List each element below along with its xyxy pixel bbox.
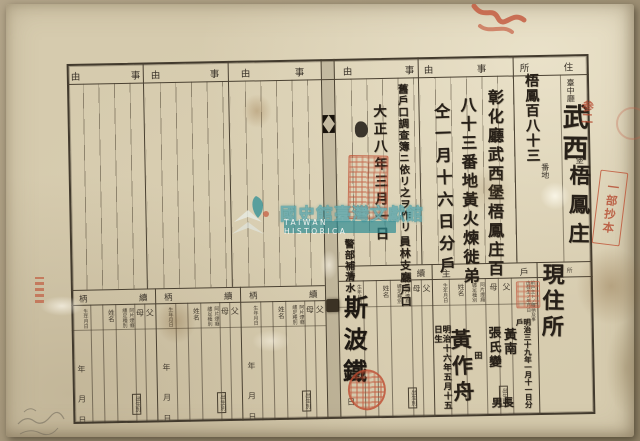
birth-order-box: 出生別 xyxy=(216,392,226,413)
day-mark: 日 xyxy=(163,413,171,424)
header-jusho-char: 住 xyxy=(564,59,574,73)
birth-date-label: 生年月日 xyxy=(252,305,257,325)
red-square-seal xyxy=(348,155,389,220)
header-jiyu-char: 事 xyxy=(210,66,220,80)
handwritten-birth-order: 長男 xyxy=(491,397,513,416)
father-label: 父 xyxy=(230,307,238,315)
year-mark: 年 xyxy=(77,364,85,375)
address-col-label: 所 xyxy=(567,265,573,274)
binding-tie-top xyxy=(329,115,335,133)
type-label: 纏足種別 xyxy=(121,308,126,328)
mother-label: 母 xyxy=(135,309,143,317)
year-mark: 年 xyxy=(162,362,170,373)
type-label: 阿片煙癮 xyxy=(128,308,133,328)
stain xyxy=(606,322,640,414)
birth-order-box: 出生別 xyxy=(407,387,417,408)
type-label: 阿片煙癮 xyxy=(298,305,303,325)
handwritten-mother-name: 張氏變 xyxy=(487,326,500,370)
month-mark: 月 xyxy=(163,392,171,403)
header-jiyu-char: 由 xyxy=(424,62,434,76)
lot-unit-printed: 番地 xyxy=(541,163,549,179)
father-label: 父 xyxy=(315,305,323,313)
birth-order-box: 出生別 xyxy=(131,394,141,415)
faint-round-stamp xyxy=(616,107,640,140)
day-mark: 日 xyxy=(248,411,256,422)
ink-blot xyxy=(355,121,368,137)
block-header-char: 續 xyxy=(139,292,148,304)
handwritten-father-name: 黃南 xyxy=(502,327,516,355)
block-header-char: 續 xyxy=(224,290,233,302)
red-small-seal xyxy=(516,281,541,308)
header-jiyu-char: 事 xyxy=(405,62,415,76)
member-block: 父 母 阿片煙癮 纏足種別 姓名 生年月日 出生別 年 月 日 xyxy=(241,300,327,421)
handwritten-name-note: 田 xyxy=(474,350,482,361)
handwritten-record-office: 員林支廳戶口 xyxy=(399,235,411,307)
type-label: 纏足種別 xyxy=(206,306,211,326)
header-jiyu-char: 由 xyxy=(343,64,353,78)
mother-label: 母 xyxy=(305,305,313,313)
mother-label: 母 xyxy=(412,284,420,292)
binding-tie-bottom xyxy=(326,299,339,312)
mother-label: 母 xyxy=(220,307,228,315)
block-header-char: 柄 xyxy=(79,293,88,305)
member-block: 父 母 阿片煙癮 纏足種別 姓名 生年月日 出生別 年 月 日 xyxy=(156,302,242,423)
register-form: 由 事 由 事 由 事 由 事 由 事 所 住 柄 續 xyxy=(67,54,596,424)
member-block: 父 母 阿片煙癮 纏足種別 姓名 生年月日 出生別 年 月 日 xyxy=(71,303,157,424)
header-jiyu-char: 事 xyxy=(131,68,141,82)
top-red-seal-partial xyxy=(468,4,528,38)
header-jiyu-char: 由 xyxy=(151,67,161,81)
handwritten-village: 梧鳳庄 xyxy=(567,164,589,251)
paper-sheet: 由 事 由 事 由 事 由 事 由 事 所 住 柄 續 xyxy=(6,4,634,437)
scanned-household-register: 由 事 由 事 由 事 由 事 由 事 所 住 柄 續 xyxy=(0,0,640,441)
handwritten-head-name: 黃作舟 xyxy=(448,328,473,407)
ruled-columns xyxy=(230,79,325,287)
name-label: 姓名 xyxy=(107,309,114,322)
birth-order-box: 出生別 xyxy=(301,390,311,411)
name-label: 姓名 xyxy=(192,308,199,321)
handwritten-jiyu-line: 彰化廳武西堡梧鳳庄百 xyxy=(486,89,502,279)
father-label: 父 xyxy=(502,283,510,291)
excerpt-stamp-text: 一部抄本 xyxy=(601,181,619,236)
birth-date-label: 生年月日 xyxy=(167,307,172,327)
handwritten-current-address: 現住所 xyxy=(539,263,562,341)
birth-date-label: 生年月日 xyxy=(442,283,447,303)
handwritten-head-birth-date: 明治十六年五月十五日生 xyxy=(433,325,452,417)
block-header-char: 續 xyxy=(309,288,318,300)
father-label: 父 xyxy=(145,308,153,316)
red-archival-script: 参二 xyxy=(580,100,593,125)
type-label: 纏足種別 xyxy=(291,305,296,325)
handwritten-jiyu-line: 八十三番地黃火煉徙弟 xyxy=(458,96,478,286)
excerpt-stamp: 一部抄本 xyxy=(592,170,629,247)
handwritten-record-official: 警部補清水 xyxy=(342,239,353,294)
year-mark: 年 xyxy=(247,360,255,371)
block-header-char: 柄 xyxy=(249,289,258,301)
header-jiyu-char: 事 xyxy=(295,64,305,78)
name-label: 姓名 xyxy=(381,285,388,298)
birth-date-label: 生年月日 xyxy=(82,309,87,329)
prefecture-printed: 臺中廳 xyxy=(566,78,574,102)
block-header-char: 續 xyxy=(417,267,426,279)
month-mark: 月 xyxy=(248,390,256,401)
father-label: 父 xyxy=(422,284,430,292)
type-label: 阿片煙癮 xyxy=(213,306,218,326)
mother-label: 母 xyxy=(489,283,497,291)
handwritten-lot-number: 梧鳳百八十三 xyxy=(524,73,540,163)
name-label: 姓名 xyxy=(277,306,284,319)
ruled-columns xyxy=(68,83,147,290)
left-margin-red-mark xyxy=(35,277,44,303)
handwritten-head-note: 明治三十九年一月十一日分戶 xyxy=(516,318,533,415)
header-jiyu-char: 事 xyxy=(477,61,487,75)
header-jiyu-char: 由 xyxy=(241,66,251,80)
pencil-scribbles xyxy=(14,386,80,440)
header-jiyu-char: 由 xyxy=(71,69,81,83)
handwritten-record-note: 舊戶口調查簿ニ依リ之ヲ作リ xyxy=(397,84,410,234)
ruled-columns xyxy=(145,81,232,289)
block-header-char: 柄 xyxy=(164,291,173,303)
